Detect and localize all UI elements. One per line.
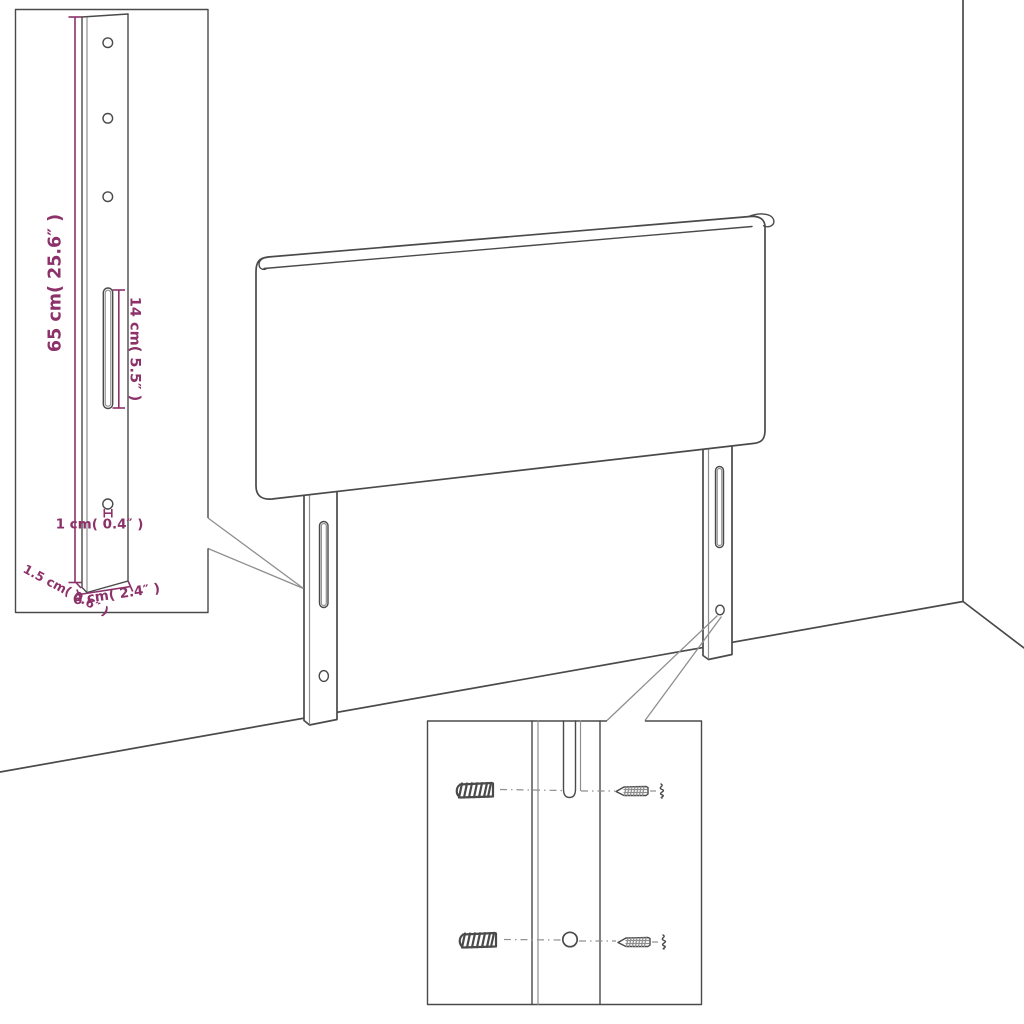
leader-mounting-detail-left [607,616,718,721]
leader-mounting-detail-right [645,617,722,721]
floor-line-right [963,602,1024,649]
leg-detail-inset: 65 cm( 25.6″ ) 14 cm( 5.5″ ) 1 cm( 0.4″ … [16,10,209,619]
leader-leg-detail-upper [208,518,304,589]
dim-label-leg-height: 65 cm( 25.6″ ) [46,214,66,352]
headboard-left-leg [304,488,337,725]
panel-outline [256,216,765,499]
dim-label-slot-length: 14 cm( 5.5″ ) [127,297,143,401]
assembly-diagram-page: 65 cm( 25.6″ ) 14 cm( 5.5″ ) 1 cm( 0.4″ … [0,0,1024,1024]
headboard-right-leg [703,442,732,660]
mounting-inset-bg [428,721,702,1005]
dim-label-hole-diameter: 1 cm( 0.4″ ) [56,517,144,533]
headboard-panel [256,214,774,499]
headboard-assembly-diagram: 65 cm( 25.6″ ) 14 cm( 5.5″ ) 1 cm( 0.4″ … [0,0,1024,1024]
leader-leg-detail-lower [208,549,304,589]
mounting-detail-inset [428,721,702,1005]
